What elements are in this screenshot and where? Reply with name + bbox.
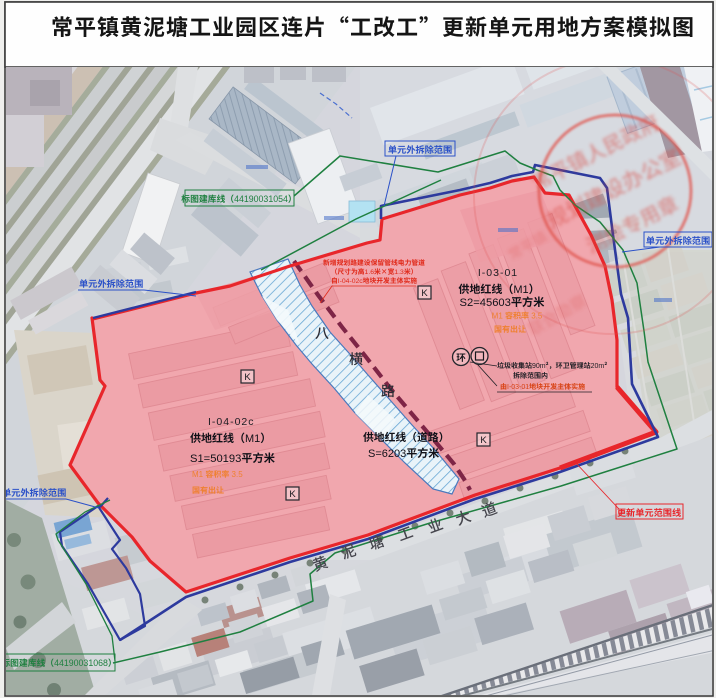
svg-text:K: K bbox=[421, 285, 428, 299]
svg-text:K: K bbox=[480, 432, 487, 446]
svg-text:单元外拆除范围: 单元外拆除范围 bbox=[2, 485, 66, 499]
svg-text:K: K bbox=[289, 486, 296, 500]
svg-text:国有出让: 国有出让 bbox=[192, 485, 224, 496]
svg-text:垃圾收集站90m²，环卫管理站20m²: 垃圾收集站90m²，环卫管理站20m² bbox=[497, 361, 607, 371]
svg-text:M1 容积率 3.5: M1 容积率 3.5 bbox=[492, 311, 543, 322]
svg-text:I-03-01: I-03-01 bbox=[478, 265, 518, 280]
svg-text:由I-03-01地块开发主体实施: 由I-03-01地块开发主体实施 bbox=[500, 382, 585, 392]
svg-text:标图建库线（44190031054）: 标图建库线（44190031054） bbox=[181, 192, 296, 205]
svg-text:八: 八 bbox=[315, 323, 329, 343]
svg-text:单元外拆除范围: 单元外拆除范围 bbox=[79, 276, 143, 290]
svg-text:供地红线（M1）: 供地红线（M1） bbox=[190, 430, 271, 446]
svg-text:单元外拆除范围: 单元外拆除范围 bbox=[646, 233, 710, 247]
svg-text:标图建库线（44190031068）: 标图建库线（44190031068） bbox=[1, 656, 116, 669]
svg-text:横: 横 bbox=[349, 349, 363, 369]
svg-text:路: 路 bbox=[381, 381, 395, 401]
svg-text:更新单元范围线: 更新单元范围线 bbox=[617, 505, 681, 519]
svg-text:S2=45603平方米: S2=45603平方米 bbox=[460, 294, 545, 310]
svg-text:I-04-02c: I-04-02c bbox=[208, 414, 255, 429]
svg-text:S=6203平方米: S=6203平方米 bbox=[368, 445, 439, 461]
svg-text:单元外拆除范围: 单元外拆除范围 bbox=[388, 142, 452, 156]
svg-text:国有出让: 国有出让 bbox=[494, 324, 526, 335]
svg-text:环: 环 bbox=[456, 350, 466, 364]
svg-text:S1=50193平方米: S1=50193平方米 bbox=[190, 450, 275, 466]
svg-text:常平镇黄泥塘工业园区连片“工改工”更新单元用地方案模拟图: 常平镇黄泥塘工业园区连片“工改工”更新单元用地方案模拟图 bbox=[51, 10, 695, 42]
svg-text:供地红线（道路）: 供地红线（道路） bbox=[363, 429, 449, 445]
svg-text:自I-04-02c地块开发主体实施: 自I-04-02c地块开发主体实施 bbox=[331, 275, 417, 285]
svg-text:K: K bbox=[244, 369, 251, 383]
svg-text:M1 容积率 3.5: M1 容积率 3.5 bbox=[192, 469, 243, 480]
svg-text:拆除范围内: 拆除范围内 bbox=[513, 371, 548, 381]
